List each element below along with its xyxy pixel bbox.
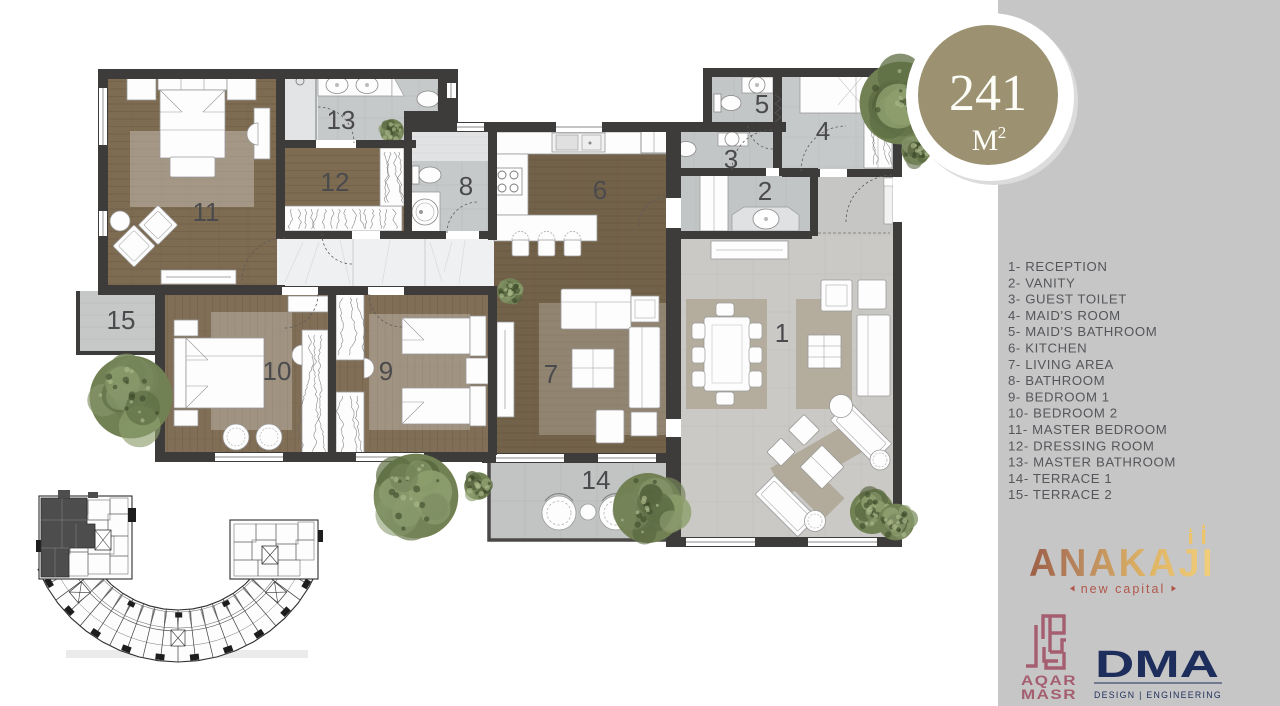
svg-text:2: 2: [998, 123, 1007, 142]
svg-text:11- MASTER BEDROOM: 11- MASTER BEDROOM: [1008, 422, 1167, 437]
svg-text:13: 13: [327, 105, 356, 135]
svg-text:6- KITCHEN: 6- KITCHEN: [1008, 341, 1087, 356]
svg-text:10: 10: [263, 356, 292, 386]
svg-text:12- DRESSING ROOM: 12- DRESSING ROOM: [1008, 438, 1155, 453]
svg-text:2: 2: [758, 176, 772, 206]
svg-text:8- BATHROOM: 8- BATHROOM: [1008, 373, 1105, 388]
svg-text:14- TERRACE 1: 14- TERRACE 1: [1008, 471, 1112, 486]
svg-text:5- MAID'S BATHROOM: 5- MAID'S BATHROOM: [1008, 324, 1157, 339]
svg-text:10- BEDROOM 2: 10- BEDROOM 2: [1008, 406, 1118, 421]
svg-text:6: 6: [593, 175, 607, 205]
svg-text:8: 8: [459, 171, 473, 201]
svg-text:DMA: DMA: [1095, 644, 1219, 686]
svg-text:12: 12: [321, 167, 350, 197]
svg-text:14: 14: [582, 465, 611, 495]
svg-text:DESIGN | ENGINEERING: DESIGN | ENGINEERING: [1094, 690, 1222, 701]
svg-text:241: 241: [949, 65, 1027, 122]
svg-text:3- GUEST TOILET: 3- GUEST TOILET: [1008, 292, 1127, 307]
svg-text:1: 1: [775, 318, 789, 348]
svg-text:7: 7: [544, 359, 558, 389]
svg-text:5: 5: [755, 89, 769, 119]
svg-text:3: 3: [724, 144, 738, 174]
svg-text:9- BEDROOM 1: 9- BEDROOM 1: [1008, 389, 1110, 404]
svg-text:7- LIVING AREA: 7- LIVING AREA: [1008, 357, 1114, 372]
svg-text:4- MAID'S ROOM: 4- MAID'S ROOM: [1008, 308, 1121, 323]
svg-text:4: 4: [816, 116, 830, 146]
svg-text:M: M: [972, 124, 999, 157]
svg-text:AQAR: AQAR: [1021, 673, 1077, 688]
svg-text:15- TERRACE 2: 15- TERRACE 2: [1008, 487, 1112, 502]
svg-text:2- VANITY: 2- VANITY: [1008, 275, 1075, 290]
svg-text:ANAKAJI: ANAKAJI: [1029, 542, 1215, 585]
svg-text:11: 11: [193, 197, 220, 227]
svg-text:15: 15: [107, 305, 136, 335]
svg-text:1- RECEPTION: 1- RECEPTION: [1008, 259, 1108, 274]
svg-text:new capital: new capital: [1081, 582, 1166, 596]
svg-text:13- MASTER BATHROOM: 13- MASTER BATHROOM: [1008, 455, 1176, 470]
svg-text:MASR: MASR: [1021, 687, 1077, 702]
svg-text:9: 9: [379, 356, 393, 386]
